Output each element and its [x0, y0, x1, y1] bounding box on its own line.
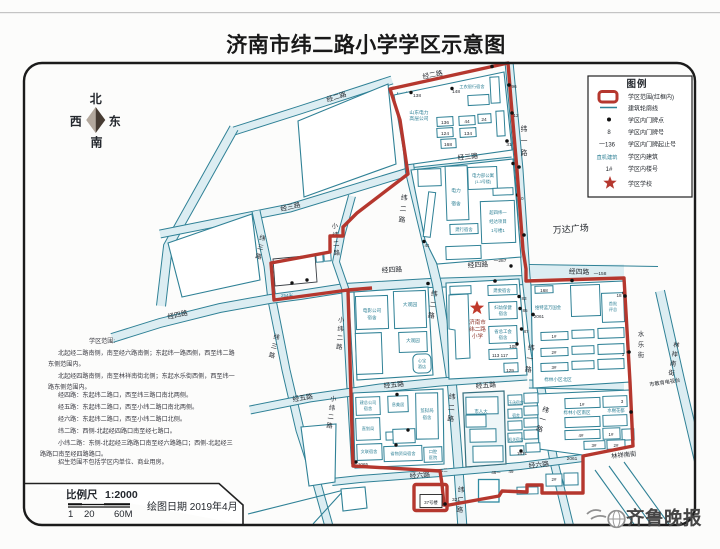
svg-text:建委宿舍: 建委宿舍: [493, 287, 511, 294]
svg-text:心宝: 心宝: [418, 357, 426, 363]
svg-text:学区内建筑: 学区内建筑: [628, 153, 658, 161]
svg-text:电影公司: 电影公司: [363, 307, 382, 314]
svg-text:18: 18: [616, 293, 622, 298]
svg-text:电力部公寓: 电力部公寓: [472, 172, 495, 179]
svg-text:监狱局: 监狱局: [420, 407, 433, 414]
svg-text:1#: 1#: [580, 402, 585, 407]
svg-text:46一: 46一: [491, 470, 501, 475]
svg-text:文联宿舍: 文联宿舍: [361, 448, 379, 455]
svg-text:医院: 医院: [429, 454, 438, 461]
svg-text:44: 44: [464, 119, 470, 125]
svg-text:建行宿舍: 建行宿舍: [455, 226, 473, 233]
svg-text:机关宿舍: 机关宿舍: [508, 437, 523, 442]
svg-text:136: 136: [441, 120, 449, 126]
svg-text:168: 168: [540, 288, 548, 293]
svg-text:宿舍: 宿舍: [512, 413, 520, 418]
svg-text:学区内门牌号: 学区内门牌号: [628, 129, 664, 137]
svg-text:4#: 4#: [579, 433, 584, 438]
svg-text:124: 124: [441, 131, 449, 137]
svg-text:宿舍: 宿舍: [499, 334, 508, 341]
svg-text:建筑轮廓线: 建筑轮廓线: [628, 105, 658, 113]
svg-text:宿舍: 宿舍: [499, 310, 508, 317]
svg-text:市人大: 市人大: [474, 408, 488, 415]
svg-text:经达项目: 经达项目: [489, 218, 507, 225]
svg-text:工农银行宿舍: 工农银行宿舍: [459, 83, 485, 90]
svg-text:超四纬一: 超四纬一: [489, 209, 507, 216]
svg-text:大观园: 大观园: [403, 301, 418, 308]
svg-text:148: 148: [452, 89, 460, 95]
svg-text:学区内门牌点: 学区内门牌点: [628, 117, 664, 125]
svg-text:96: 96: [511, 84, 517, 90]
svg-text:招生范围不包括学区内单位、商业用房。: 招生范围不包括学区内单位、商业用房。: [58, 458, 168, 466]
svg-text:息美居: 息美居: [392, 401, 405, 408]
svg-text:宿舍: 宿舍: [364, 405, 373, 412]
svg-text:20: 20: [84, 509, 95, 520]
svg-text:31: 31: [506, 142, 512, 148]
svg-text:2061: 2061: [534, 314, 545, 319]
svg-text:37号楼: 37号楼: [424, 499, 438, 506]
svg-text:纬二路: 纬二路: [469, 325, 486, 333]
svg-text:经四路：东起纬二路口，西至纬三路口南北两侧。: 经四路：东起纬二路口，西至纬三路口南北两侧。: [58, 391, 192, 399]
svg-text:24: 24: [481, 117, 487, 123]
svg-text:3#: 3#: [552, 365, 557, 370]
svg-text:图例: 图例: [626, 78, 647, 90]
svg-text:纬二路：西侧-北起经四路口南至经七路口。: 纬二路：西侧-北起经四路口南至经七路口。: [58, 427, 176, 435]
svg-text:齐鲁晚报: 齐鲁晚报: [626, 508, 702, 529]
svg-text:1:2000: 1:2000: [105, 489, 138, 501]
svg-text:路东侧范围内。: 路东侧范围内。: [48, 383, 91, 391]
svg-text:首批: 首批: [609, 300, 618, 307]
svg-text:85: 85: [522, 308, 528, 313]
svg-text:87: 87: [523, 329, 529, 334]
svg-text:3: 3: [622, 352, 625, 357]
svg-text:直划局: 直划局: [362, 425, 375, 432]
svg-text:济南市纬二路小学学区示意图: 济南市纬二路小学学区示意图: [226, 33, 506, 57]
svg-text:1号楼1: 1号楼1: [491, 227, 505, 234]
svg-text:直机建筑: 直机建筑: [597, 153, 619, 161]
svg-text:经五路：东起纬二路口，西至小纬二路口南北两侧。: 经五路：东起纬二路口，西至小纬二路口南北两侧。: [58, 403, 198, 411]
svg-text:栎林小区南区: 栎林小区南区: [564, 409, 591, 416]
svg-text:省物资局宿舍: 省物资局宿舍: [390, 450, 416, 457]
svg-text:3#: 3#: [592, 443, 597, 448]
svg-text:138: 138: [413, 93, 421, 99]
svg-text:酒店: 酒店: [418, 363, 426, 370]
svg-text:学区范围(红框内): 学区范围(红框内): [628, 93, 674, 101]
svg-text:2#: 2#: [552, 477, 557, 482]
svg-text:北起经四路南侧，南至林祥南街北侧；东起水乐街西侧，西至纬一: 北起经四路南侧，南至林祥南街北侧；东起水乐街西侧，西至纬一: [58, 372, 235, 380]
svg-text:宿舍: 宿舍: [423, 414, 432, 421]
svg-text:2061: 2061: [567, 456, 578, 462]
svg-text:60M: 60M: [114, 509, 133, 520]
svg-text:比例尺: 比例尺: [66, 488, 98, 501]
svg-text:41: 41: [424, 243, 430, 248]
svg-text:高层公司: 高层公司: [409, 115, 428, 122]
svg-text:宿舍: 宿舍: [367, 314, 377, 321]
svg-text:2#: 2#: [552, 350, 557, 355]
svg-text:经六路：东起纬二路口，西至小纬二路口北侧。: 经六路：东起纬二路口，西至小纬二路口北侧。: [58, 415, 186, 423]
svg-text:12: 12: [513, 113, 519, 119]
svg-text:168: 168: [444, 142, 452, 148]
svg-text:东: 东: [109, 114, 121, 129]
svg-text:105: 105: [509, 344, 517, 349]
svg-text:学区内楼号: 学区内楼号: [628, 165, 658, 173]
svg-text:一158: 一158: [594, 271, 607, 277]
svg-text:321: 321: [452, 497, 460, 503]
svg-text:一287: 一287: [494, 258, 507, 264]
svg-text:东侧范围内。: 东侧范围内。: [48, 360, 85, 368]
svg-text:83: 83: [521, 296, 527, 301]
svg-text:济南市: 济南市: [469, 318, 486, 326]
svg-text:纬一路: 纬一路: [521, 124, 528, 157]
svg-text:电力: 电力: [451, 187, 461, 194]
svg-text:(1-3号楼): (1-3号楼): [475, 178, 492, 184]
svg-text:维特蓝万国金: 维特蓝万国金: [535, 304, 562, 311]
svg-text:129: 129: [506, 368, 514, 373]
svg-text:大观园: 大观园: [406, 337, 420, 344]
svg-text:绘图日期 2019年4月: 绘图日期 2019年4月: [147, 500, 238, 513]
svg-text:水榭花都: 水榭花都: [607, 407, 625, 414]
svg-text:小学: 小学: [472, 332, 484, 340]
svg-text:建总公司: 建总公司: [360, 399, 377, 406]
svg-text:1#: 1#: [609, 432, 614, 437]
svg-text:口腔: 口腔: [429, 448, 437, 455]
svg-text:北: 北: [90, 91, 102, 106]
svg-text:北起经二路南侧，南至经六路南侧；东起纬一路西侧，西至纬二路: 北起经二路南侧，南至经六路南侧；东起纬一路西侧，西至纬二路: [58, 349, 235, 357]
svg-text:1#: 1#: [552, 334, 557, 339]
svg-text:1#: 1#: [606, 167, 613, 173]
svg-text:3: 3: [621, 399, 624, 404]
svg-text:学区学校: 学区学校: [628, 180, 652, 188]
svg-text:栎林小区北区: 栎林小区北区: [544, 376, 572, 383]
svg-text:路路口南至经四路路口。: 路路口南至经四路路口。: [40, 450, 107, 458]
svg-text:宿舍: 宿舍: [451, 200, 461, 207]
svg-text:1: 1: [68, 509, 73, 520]
svg-text:南: 南: [90, 135, 102, 150]
svg-text:山东电力: 山东电力: [409, 109, 428, 116]
svg-text:西: 西: [70, 115, 82, 129]
svg-text:妇幼保健: 妇幼保健: [494, 304, 512, 311]
svg-text:134: 134: [464, 131, 472, 137]
svg-text:一136: 一136: [599, 143, 616, 149]
svg-text:学区范围:: 学区范围:: [89, 337, 115, 345]
svg-text:49: 49: [509, 469, 514, 474]
svg-text:省总工会: 省总工会: [494, 328, 512, 335]
svg-text:113 117: 113 117: [492, 353, 508, 358]
svg-text:学区内门牌起止号: 学区内门牌起止号: [628, 141, 676, 149]
svg-text:水乐街: 水乐街: [638, 329, 645, 359]
svg-text:玉函宿舍: 玉函宿舍: [508, 400, 523, 405]
svg-text:小纬二路：东侧-北起经三路路口南至经六路路口；西侧-北起经三: 小纬二路：东侧-北起经三路路口南至经六路路口；西侧-北起经三: [58, 439, 233, 447]
svg-text:评总: 评总: [609, 306, 617, 313]
